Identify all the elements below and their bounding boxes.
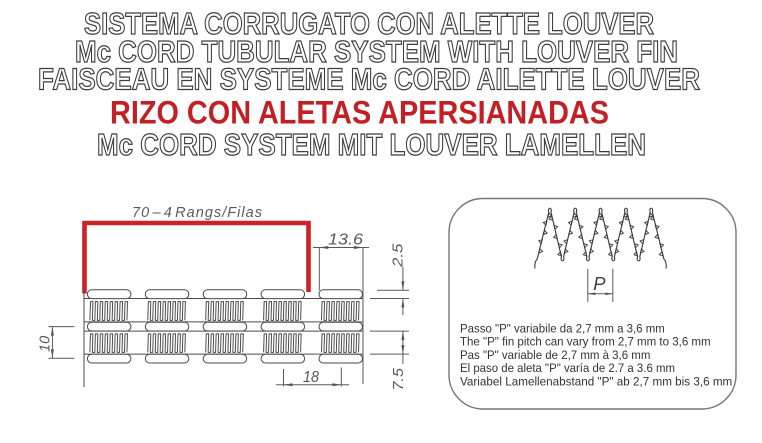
svg-text:The "P" fin pitch can vary fro: The "P" fin pitch can vary from 2,7 mm t… xyxy=(460,335,711,349)
svg-text:P: P xyxy=(593,273,606,294)
svg-text:10: 10 xyxy=(38,336,54,352)
svg-text:18: 18 xyxy=(303,369,319,386)
svg-text:7.5: 7.5 xyxy=(390,367,407,390)
svg-text:Passo "P" variabile da 2,7 mm: Passo "P" variabile da 2,7 mm a 3,6 mm xyxy=(460,321,665,335)
svg-text:FAISCEAU EN SYSTEME Mc CORD AI: FAISCEAU EN SYSTEME Mc CORD AILETTE LOUV… xyxy=(38,62,700,96)
svg-text:Pas "P" variable de 2,7 mm à 3: Pas "P" variable de 2,7 mm à 3,6 mm xyxy=(460,348,650,362)
svg-text:70 – 4 Rangs/Filas: 70 – 4 Rangs/Filas xyxy=(132,205,262,221)
svg-text:Variabel Lamellenabstand "P": Variabel Lamellenabstand "P" ab 2,7 mm b… xyxy=(460,375,732,389)
svg-text:El paso de aleta "P" varía de: El paso de aleta "P" varía de 2.7 a 3.6 … xyxy=(460,361,675,375)
svg-text:Mc CORD SYSTEM MIT LOUVER LAME: Mc CORD SYSTEM MIT LOUVER LAMELLEN xyxy=(97,128,646,162)
svg-text:2.5: 2.5 xyxy=(390,243,407,268)
svg-text:13.6: 13.6 xyxy=(328,232,363,249)
svg-text:RIZO CON ALETAS APERSIANADAS: RIZO CON ALETAS APERSIANADAS xyxy=(110,94,609,130)
